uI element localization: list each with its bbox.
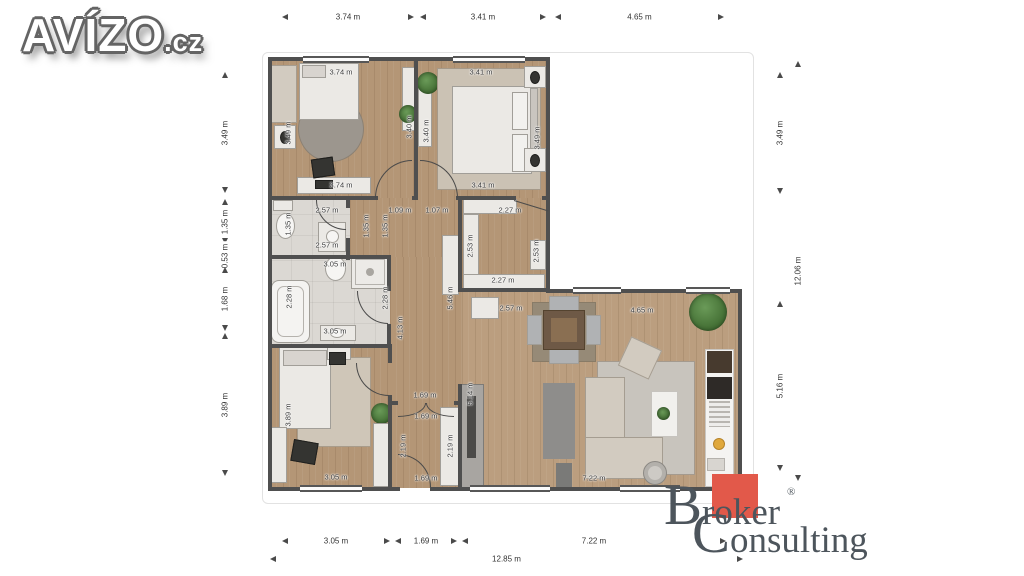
label-hall-left: 1.35 m: [381, 215, 390, 238]
window-bedroom3: [300, 485, 362, 492]
dining-table-top: [551, 318, 577, 342]
dim-top-3: 4.65 m: [556, 14, 723, 20]
label-bedroom1-bottom: 3.74 m: [330, 181, 353, 190]
window-bedroom1: [303, 56, 369, 63]
wall-bedrooms-south-b: [412, 196, 418, 200]
kitchen-shelf: [709, 401, 730, 427]
label-entry-left: 2.19 m: [399, 435, 408, 458]
wall-closet-bottom: [458, 288, 550, 292]
living-media-unit: [556, 463, 572, 487]
bedroom2-lamp-1: [530, 71, 540, 84]
label-living-top: 4.65 m: [631, 306, 654, 315]
dim-right-total: 12.06 m: [795, 62, 801, 480]
kitchen-appliance-1: [707, 351, 732, 373]
label-bedroom2-top: 3.41 m: [470, 68, 493, 77]
label-bath-top: 3.05 m: [324, 260, 347, 269]
kitchen-appliance-2: [707, 377, 732, 399]
label-living-bottom: 7.22 m: [583, 474, 606, 483]
label-entry-bottom: 1.69 m: [415, 474, 438, 483]
bedroom3-desk: [270, 427, 287, 483]
label-dining: 2.57 m: [500, 304, 523, 313]
label-hall-width1: 1.09 m: [389, 206, 412, 215]
dim-top-1: 3.74 m: [283, 14, 413, 20]
bedroom3-pillow: [283, 350, 327, 366]
wall-bedroom3-top: [268, 344, 392, 348]
label-bedroom2-right: 3.49 m: [533, 127, 542, 150]
label-wc-left: 1.35 m: [284, 213, 293, 236]
dim-left-3: 0.53 m: [222, 247, 228, 265]
wall-right-upper: [546, 57, 550, 293]
avizo-logo-tld: .cz: [164, 27, 203, 57]
bedroom1-sofa: [271, 65, 297, 123]
label-wardrobe-right: 3.40 m: [422, 120, 431, 143]
floorplan-image: 3.74 m 3.74 m 3.49 m 3.41 m 3.41 m 3.49 …: [0, 0, 1024, 576]
dining-chair-east: [586, 315, 601, 345]
label-bath-bottom: 3.05 m: [324, 327, 347, 336]
shower-drain: [366, 268, 374, 276]
dining-chair-west: [527, 315, 542, 345]
bedroom3-desk-chair: [290, 439, 318, 465]
label-corridor-right: 5.46 m: [446, 287, 455, 310]
label-wc-bottom: 2.57 m: [316, 241, 339, 250]
label-bedroom3-bottom: 3.05 m: [325, 473, 348, 482]
label-closet-bottom: 2.27 m: [492, 276, 515, 285]
label-entry-top: 1.69 m: [414, 391, 437, 400]
dim-left-1: 3.49 m: [222, 73, 228, 192]
label-bedroom1-top: 3.74 m: [330, 68, 353, 77]
label-wardrobe-left: 3.40 m: [405, 116, 414, 139]
dim-right-1: 3.49 m: [777, 73, 783, 193]
window-living-top-2: [686, 287, 730, 294]
dim-right-2: 5.16 m: [777, 302, 783, 470]
wall-bedroom3-right-a: [388, 344, 392, 363]
window-bedroom2: [453, 56, 525, 63]
living-sideboard: [471, 297, 499, 319]
living-runner-rug: [543, 383, 575, 459]
bedroom2-lamp-2: [530, 154, 540, 167]
bedroom3-chair-top: [329, 352, 346, 365]
label-bedroom1-left: 3.49 m: [284, 122, 293, 145]
label-living-left: 5.14 m: [466, 383, 475, 406]
label-wc-right: 1.35 m: [362, 215, 371, 238]
wall-bath-top: [268, 255, 390, 259]
dim-top-2: 3.41 m: [421, 14, 545, 20]
label-closet-right: 2.53 m: [532, 240, 541, 263]
label-bath-right: 2.28 m: [381, 287, 390, 310]
wall-entry-partition-a: [390, 401, 398, 405]
bedroom2-pillow-1: [512, 92, 528, 130]
dining-chair-south: [549, 349, 579, 364]
wall-entry-partition-b: [454, 401, 462, 405]
dim-left-2: 1.35 m: [222, 200, 228, 243]
label-entry-mid: 1.69 m: [415, 412, 438, 421]
label-entry-right: 2.19 m: [446, 435, 455, 458]
label-bedroom3-left: 3.89 m: [284, 404, 293, 427]
bedroom1-desk-chair: [311, 157, 335, 179]
dim-bottom-2: 1.69 m: [396, 538, 456, 544]
broker-consulting-logo: Broker ® Consulting: [664, 474, 894, 564]
broker-logo-registered-mark: ®: [787, 486, 795, 498]
living-ottoman-inner: [648, 466, 662, 480]
label-closet-top: 2.27 m: [499, 206, 522, 215]
dining-chair-north: [549, 296, 579, 311]
wc-cabinet: [273, 200, 293, 211]
label-closet-left: 2.53 m: [466, 235, 475, 258]
window-living-top-1: [573, 287, 621, 294]
label-corridor-height: 4.13 m: [396, 317, 405, 340]
wall-bedroom3-right-b: [388, 395, 392, 490]
wall-living-right: [738, 289, 742, 491]
avizo-logo: AVÍZO.cz: [22, 8, 203, 62]
plant-icon-coffee-table: [657, 407, 670, 420]
plant-icon-living: [689, 293, 727, 331]
label-wc-top: 2.57 m: [316, 206, 339, 215]
wall-bedroom-divider: [414, 57, 418, 200]
avizo-logo-text: AVÍZO: [22, 9, 164, 61]
window-living-bottom-1: [470, 485, 550, 492]
dim-left-4: 1.68 m: [222, 268, 228, 330]
wall-bedrooms-south-c: [456, 196, 516, 200]
broker-logo-line2: Consulting: [692, 508, 868, 559]
kitchen-item: [707, 458, 725, 471]
dim-bottom-1: 3.05 m: [283, 538, 389, 544]
bedroom1-pillow: [302, 65, 326, 78]
wall-wc-right-a: [346, 196, 350, 208]
wall-closet-left: [458, 196, 462, 292]
wall-bedrooms-south-d: [542, 196, 550, 200]
plant-icon-bedroom2: [417, 72, 439, 94]
kitchen-sink: [713, 438, 725, 450]
wall-left: [268, 57, 272, 491]
label-hall-width2: 1.07 m: [426, 206, 449, 215]
label-bedroom2-bottom: 3.41 m: [472, 181, 495, 190]
label-bath-left: 2.28 m: [285, 286, 294, 309]
dim-left-5: 3.89 m: [222, 334, 228, 475]
